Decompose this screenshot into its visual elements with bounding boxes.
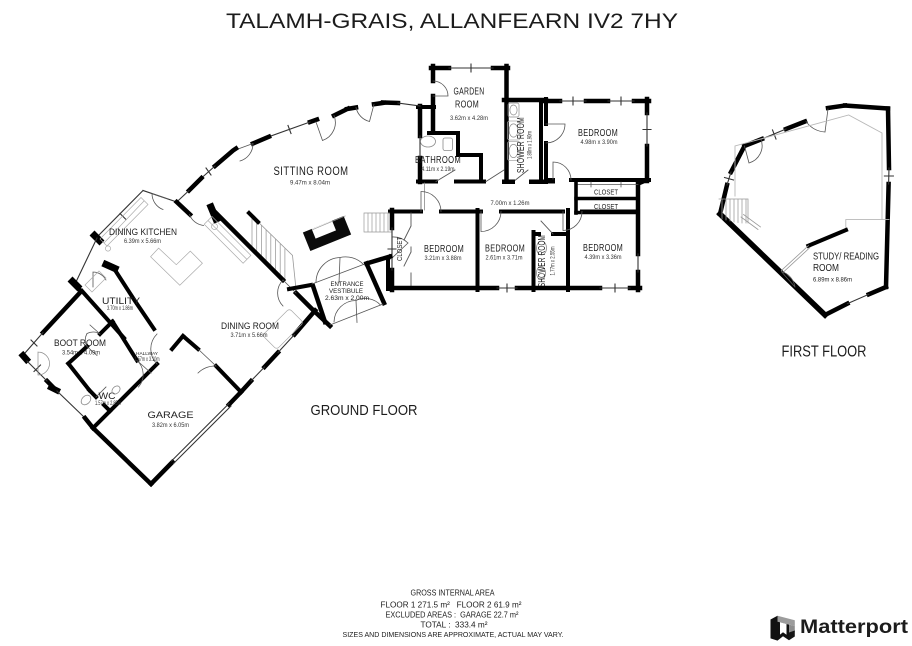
svg-text:SHOWER ROOM: SHOWER ROOM: [537, 235, 548, 287]
svg-text:3.21m x 3.88m: 3.21m x 3.88m: [425, 255, 462, 262]
svg-text:3.82m x 6.05m: 3.82m x 6.05m: [152, 422, 189, 429]
svg-text:4.98m x 3.90m: 4.98m x 3.90m: [581, 139, 618, 146]
svg-text:3.62m x 4.28m: 3.62m x 4.28m: [450, 115, 488, 122]
svg-text:FIRST FLOOR: FIRST FLOOR: [782, 344, 867, 361]
svg-text:DINING KITCHEN: DINING KITCHEN: [109, 227, 177, 238]
svg-text:9.47m x 8.04m: 9.47m x 8.04m: [290, 180, 330, 187]
svg-text:6.89m x 8.86m: 6.89m x 8.86m: [813, 277, 852, 284]
svg-text:1.80m x 1.90m: 1.80m x 1.90m: [527, 131, 534, 159]
svg-text:STUDY/ READING: STUDY/ READING: [813, 252, 879, 263]
svg-text:Matterport: Matterport: [800, 616, 909, 638]
svg-text:SIZES AND DIMENSIONS ARE APPRO: SIZES AND DIMENSIONS ARE APPROXIMATE, AC…: [343, 632, 564, 639]
svg-text:4.39m x 3.36m: 4.39m x 3.36m: [585, 254, 622, 261]
svg-text:FLOOR 1 271.5 m² FLOOR 2 61.: FLOOR 1 271.5 m² FLOOR 2 61.9 m²: [381, 600, 522, 610]
svg-text:BOOT ROOM: BOOT ROOM: [54, 338, 106, 349]
svg-text:ROOM: ROOM: [455, 100, 479, 111]
svg-text:EXCLUDED AREAS : GARAGE 22.7: EXCLUDED AREAS : GARAGE 22.7 m²: [386, 610, 519, 620]
svg-text:TALAMH-GRAIS, ALLANFEARN IV2 7: TALAMH-GRAIS, ALLANFEARN IV2 7HY: [226, 9, 678, 33]
svg-text:CLOSET: CLOSET: [594, 188, 618, 197]
svg-text:1.57m x 2.85m: 1.57m x 2.85m: [95, 400, 121, 407]
svg-text:BEDROOM: BEDROOM: [485, 244, 525, 255]
svg-text:BATHROOM: BATHROOM: [415, 155, 461, 166]
svg-text:3.71m x 5.66m: 3.71m x 5.66m: [231, 332, 268, 339]
svg-text:3.70m x 1.86m: 3.70m x 1.86m: [107, 305, 133, 312]
svg-text:6.39m x 5.66m: 6.39m x 5.66m: [124, 238, 161, 245]
svg-text:CLOSET: CLOSET: [395, 237, 404, 261]
svg-text:BEDROOM: BEDROOM: [424, 244, 464, 255]
svg-text:GROSS INTERNAL AREA: GROSS INTERNAL AREA: [411, 588, 495, 598]
svg-text:2.61m x 3.71m: 2.61m x 3.71m: [486, 255, 523, 262]
svg-text:2.63m x 2.00m: 2.63m x 2.00m: [325, 295, 369, 302]
svg-text:GARAGE: GARAGE: [148, 410, 194, 421]
svg-text:BEDROOM: BEDROOM: [578, 128, 618, 139]
svg-text:BEDROOM: BEDROOM: [583, 243, 623, 254]
svg-text:TOTAL : 333.4 m²: TOTAL : 333.4 m²: [421, 620, 488, 630]
svg-text:1.57m x 3.10m: 1.57m x 3.10m: [135, 356, 160, 363]
svg-text:SITTING ROOM: SITTING ROOM: [274, 164, 349, 178]
svg-text:4.11m x 2.19m: 4.11m x 2.19m: [422, 166, 455, 173]
svg-text:SHOWER ROOM: SHOWER ROOM: [516, 117, 527, 173]
svg-text:1.77m x 2.55m: 1.77m x 2.55m: [550, 247, 557, 276]
svg-text:7.00m x 1.26m: 7.00m x 1.26m: [491, 200, 530, 207]
svg-text:DINING ROOM: DINING ROOM: [221, 321, 279, 332]
svg-text:ROOM: ROOM: [813, 263, 839, 274]
svg-text:ENTRANCE: ENTRANCE: [331, 281, 364, 288]
svg-text:GARDEN: GARDEN: [454, 87, 485, 98]
svg-text:VESTIBULE: VESTIBULE: [329, 288, 363, 295]
svg-text:GROUND FLOOR: GROUND FLOOR: [311, 402, 418, 419]
